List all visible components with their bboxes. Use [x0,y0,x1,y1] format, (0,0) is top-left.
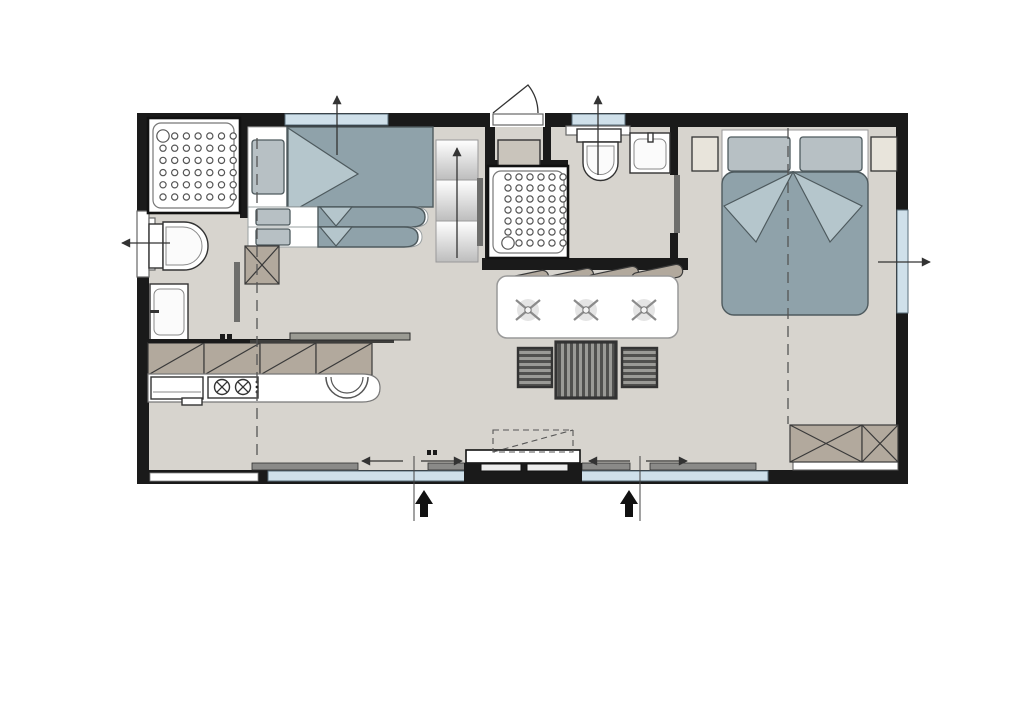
shower-dot [207,182,213,188]
stool [622,348,657,387]
entry-door-leaf [493,114,543,125]
shower-dot [183,145,189,151]
shower-dot [538,229,544,235]
sliding-door-bunkroom [477,178,483,246]
shower-dot [230,145,236,151]
entrance-arrows [415,490,638,517]
cross-mark-center [525,307,531,313]
toilet-bowl-inner [587,146,614,175]
shower-dot [207,133,213,139]
shower-dot [160,157,166,163]
worktop-bar [290,333,410,340]
floor-plan-page [0,0,1024,724]
hob-knob [256,386,259,389]
bed-pillow-right [800,137,862,171]
shower-dot [549,207,555,213]
dining [496,263,684,398]
bunk-bedroom [248,127,483,262]
shower-drain [502,237,514,249]
shower-dot [172,157,178,163]
sliding-door-bathroom-middle [674,175,680,233]
washbasin-inner [634,139,666,169]
shower-dot [538,218,544,224]
shower-dot [230,133,236,139]
shower-dot [516,240,522,246]
shower-dot [183,182,189,188]
bunk-lower-pillow [256,229,290,245]
nightstand-right [871,137,897,171]
shower-dot [538,207,544,213]
shower-dot [549,218,555,224]
shower-dot [560,207,566,213]
shower-dot [230,157,236,163]
shower-dot [516,196,522,202]
shower-dot [207,194,213,200]
shower-dot [172,182,178,188]
shower-dot [549,229,555,235]
shower-dot [505,207,511,213]
shower-dot [218,145,224,151]
shower-dot [527,240,533,246]
toilet-tank [149,224,163,268]
shower-drain [157,130,169,142]
shower-dot [527,174,533,180]
shower-dot [549,196,555,202]
bench-mark [427,450,431,455]
shower-dot [505,196,511,202]
shower-dot [195,194,201,200]
shower-dot [195,145,201,151]
shower-dot [560,196,566,202]
double-bed-duvet [722,172,868,315]
shower-dot [230,182,236,188]
shower-dot [160,145,166,151]
shower-dot [516,174,522,180]
hob-burner [215,380,230,395]
kitchen-mark [227,334,232,339]
hob-burner [236,380,251,395]
shower-dot [538,185,544,191]
toilet-bowl-inner [166,227,202,265]
shower-dot [560,218,566,224]
sliding-sash [582,463,630,470]
stool [518,348,552,387]
shower-dot [527,185,533,191]
shower-dot [516,185,522,191]
shower-dot [527,229,533,235]
shower-dot [218,182,224,188]
shower-dot [207,170,213,176]
cross-mark-center [583,307,589,313]
fridge-handle [182,398,202,405]
shower-dot [183,170,189,176]
washbasin-tap [150,310,159,313]
shower-dot [218,194,224,200]
shower-dot [207,145,213,151]
sliding-sash [428,463,470,470]
shower-dot [160,182,166,188]
sliding-door-bathroom-left [234,262,240,322]
shower-dot [505,174,511,180]
shower-dot [549,240,555,246]
entrance-arrow [415,490,433,517]
toilet-tank [577,129,621,142]
shower-dot [195,182,201,188]
shower-dot [538,196,544,202]
shower-dot [538,174,544,180]
shower-dot [527,207,533,213]
shower-dot [560,185,566,191]
window-left-wall [137,211,149,277]
window-bottom-left [150,473,258,481]
threshold-panel [527,464,568,471]
shower-dot [516,218,522,224]
shower-dot [538,240,544,246]
kitchen-wall-cabinets [148,343,372,375]
floor-plan [0,0,1024,724]
washbasin-tap [648,133,653,142]
vestibule-cabinet [498,140,540,166]
entry-door-swing-arc [493,85,538,113]
shower-dot [172,194,178,200]
bunk-middle-pillow [256,209,290,225]
shower-dot [560,174,566,180]
shower-dot [560,240,566,246]
shower-dot [195,157,201,163]
shower-dot [527,196,533,202]
shower-dot [195,170,201,176]
shower-dot [195,133,201,139]
shower-dot [218,133,224,139]
shower-dot [230,194,236,200]
bed-pillow-left [728,137,790,171]
shower-dot [160,194,166,200]
bench-mark [433,450,437,455]
sliding-sash [650,463,756,470]
threshold-panel [481,464,521,471]
shower-dot [172,145,178,151]
shower-dot [183,157,189,163]
shower-dot [505,218,511,224]
shower-dot [516,229,522,235]
shower-dot [160,170,166,176]
shower-dot [218,157,224,163]
shower-dot [549,185,555,191]
shower-dot [183,133,189,139]
entrance-arrow [620,490,638,517]
kitchen-mark [220,334,225,339]
wall-bathroom-middle-right-upper [670,127,678,175]
stool-large [556,342,616,398]
shower-dot [230,170,236,176]
shower-dot [183,194,189,200]
sliding-sash [252,463,358,470]
cross-mark-center [641,307,647,313]
shower-dot [172,133,178,139]
wardrobe-plinth [793,462,898,470]
shower-dot [516,207,522,213]
nightstand-left [692,137,718,171]
shower-dot [527,218,533,224]
fridge [151,377,203,399]
shower-dot [560,229,566,235]
shower-dot [505,229,511,235]
table-cross-marks [516,299,656,321]
shower-dot [172,170,178,176]
shower-dot [505,185,511,191]
shower-dot [207,157,213,163]
shower-dot [218,170,224,176]
kitchen [148,333,410,405]
shower-dot [549,174,555,180]
